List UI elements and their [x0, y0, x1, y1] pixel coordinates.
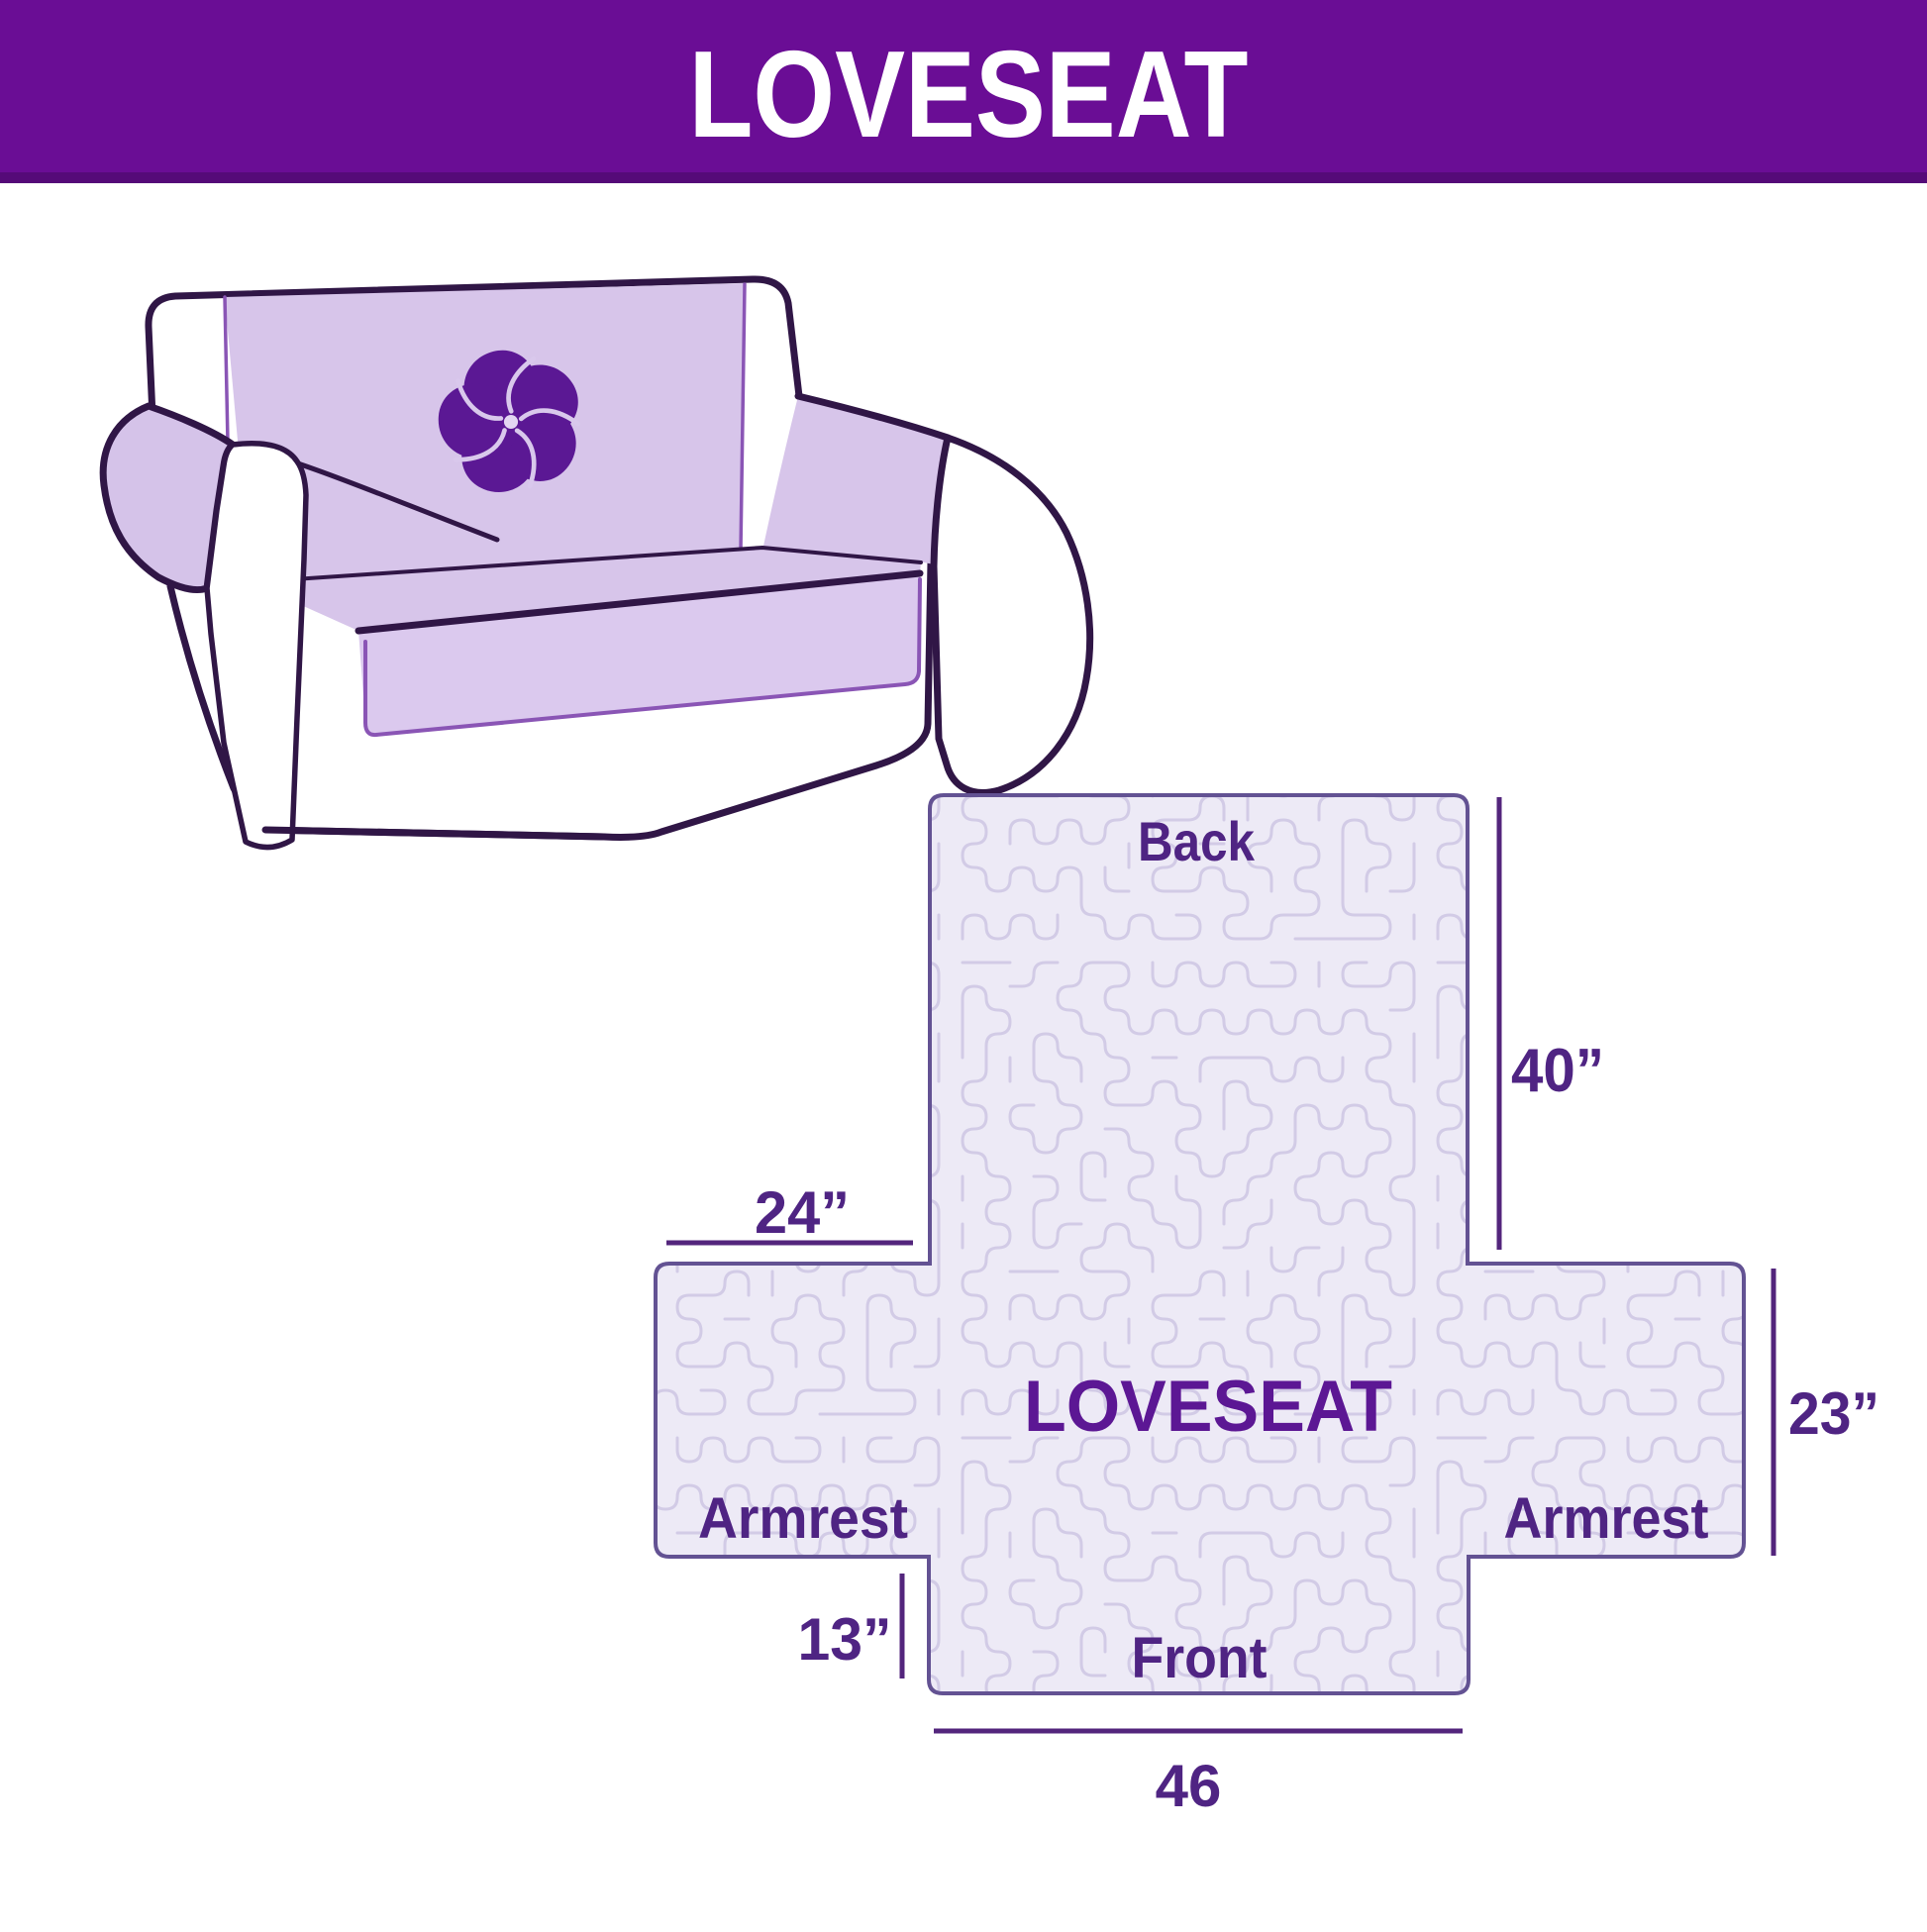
svg-text:23”: 23” [1788, 1380, 1879, 1447]
svg-text:Back: Back [1138, 810, 1256, 872]
svg-text:24”: 24” [755, 1179, 850, 1246]
svg-text:13”: 13” [798, 1606, 892, 1673]
svg-text:LOVESEAT: LOVESEAT [1024, 1367, 1392, 1447]
svg-text:Front: Front [1132, 1626, 1268, 1690]
svg-text:Armrest: Armrest [698, 1486, 908, 1551]
svg-text:Armrest: Armrest [1504, 1486, 1709, 1551]
svg-text:46: 46 [1156, 1753, 1222, 1819]
svg-text:40”: 40” [1511, 1037, 1604, 1105]
svg-text:LOVESEAT: LOVESEAT [689, 27, 1249, 163]
